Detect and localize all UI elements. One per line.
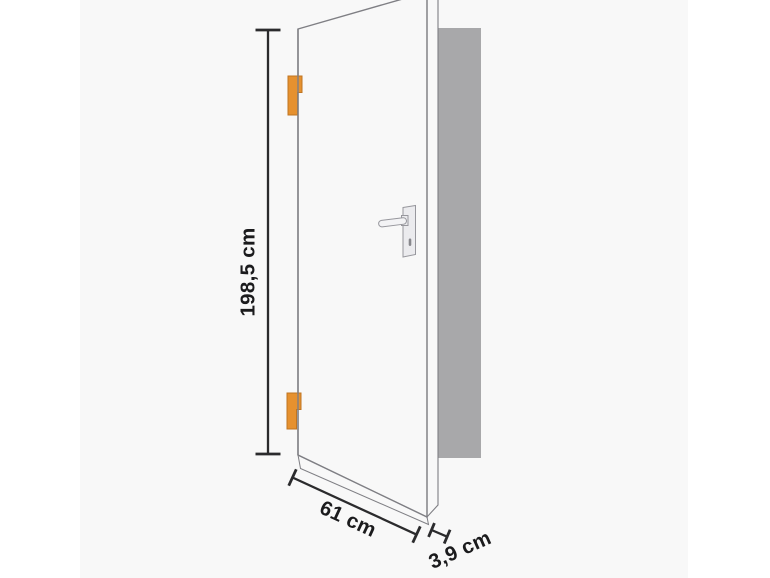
photo-area (80, 0, 688, 578)
door-frame-silhouette (438, 28, 482, 458)
door-diagram-canvas: 198,5 cm 61 cm 3,9 cm (0, 0, 770, 578)
door-diagram: 198,5 cm 61 cm 3,9 cm (0, 0, 770, 578)
height-dimension-label: 198,5 cm (237, 227, 260, 316)
keyhole (409, 239, 412, 247)
door-handle-plate (403, 206, 416, 258)
